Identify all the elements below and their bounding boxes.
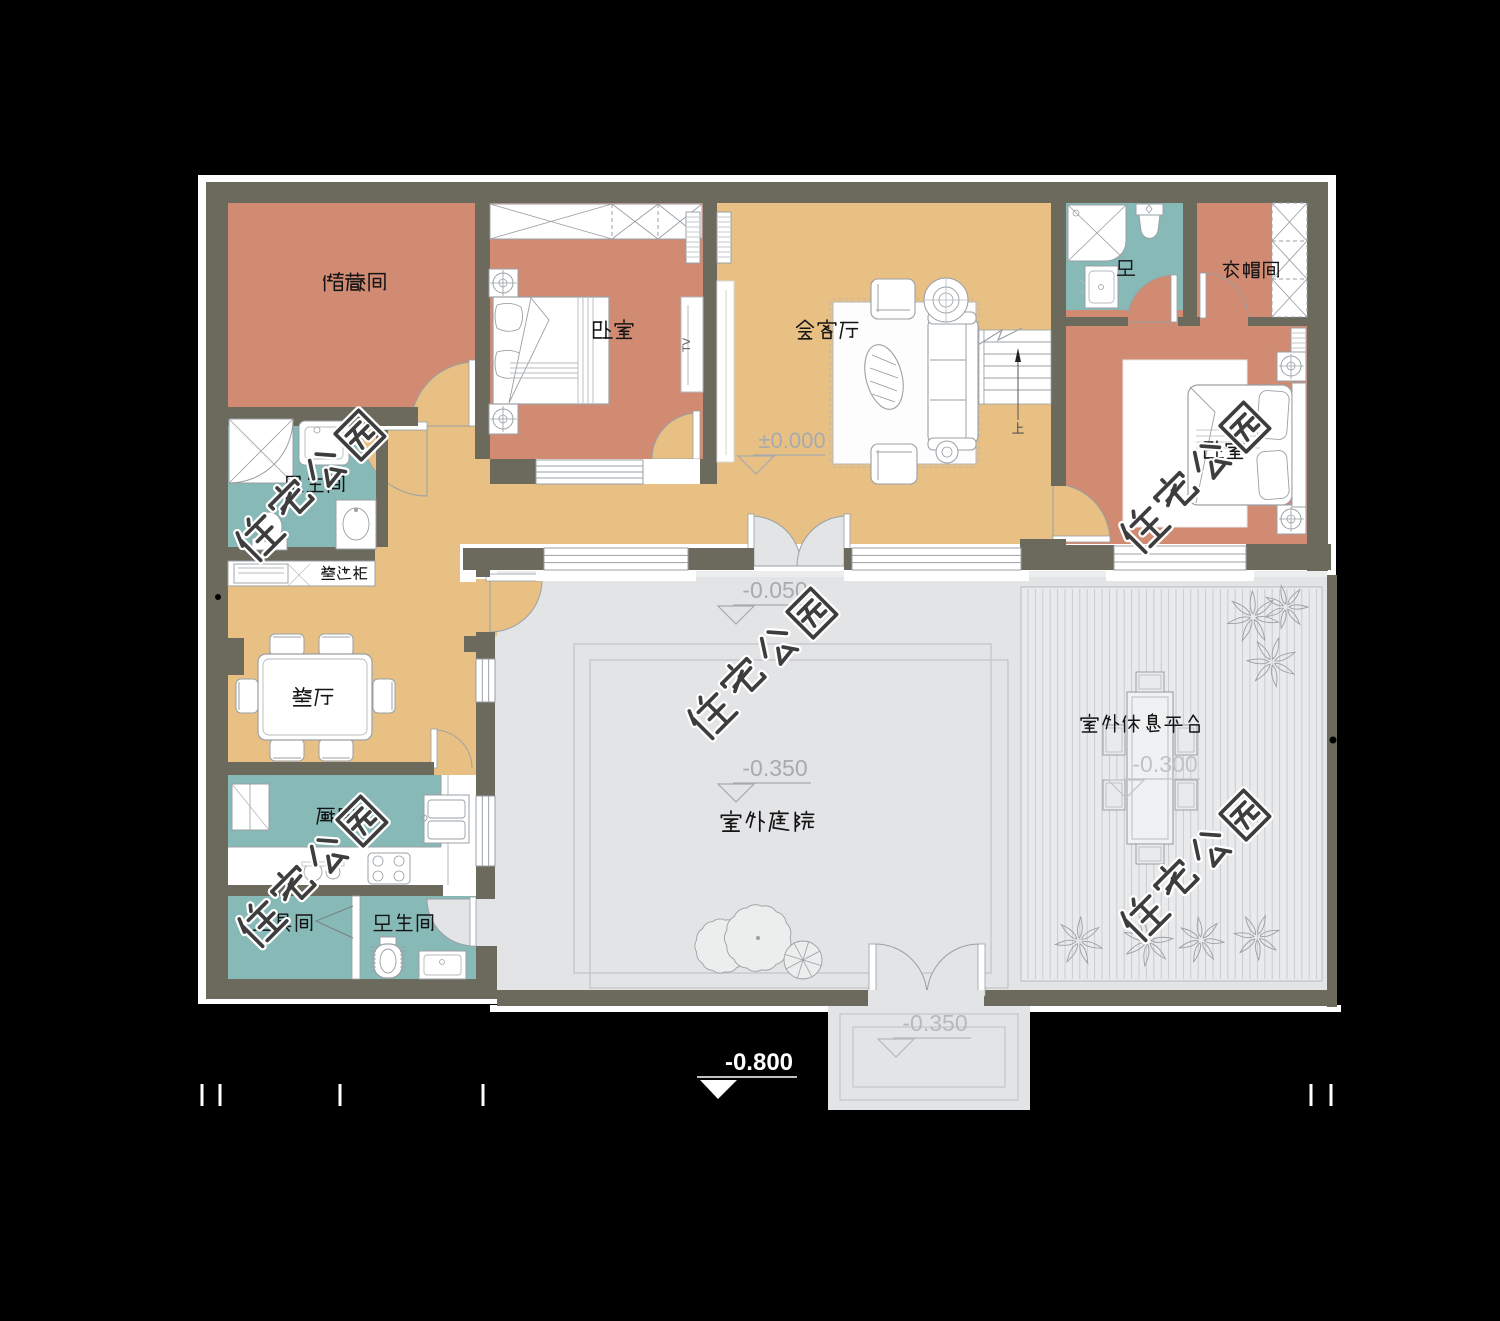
svg-text:-0.300: -0.300 [1132,751,1197,777]
svg-text:-0.350: -0.350 [742,755,807,781]
svg-text:-0.350: -0.350 [902,1010,967,1036]
svg-text:-0.800: -0.800 [725,1049,793,1076]
svg-text:TV: TV [681,337,693,352]
svg-text:±0.000: ±0.000 [758,428,825,453]
